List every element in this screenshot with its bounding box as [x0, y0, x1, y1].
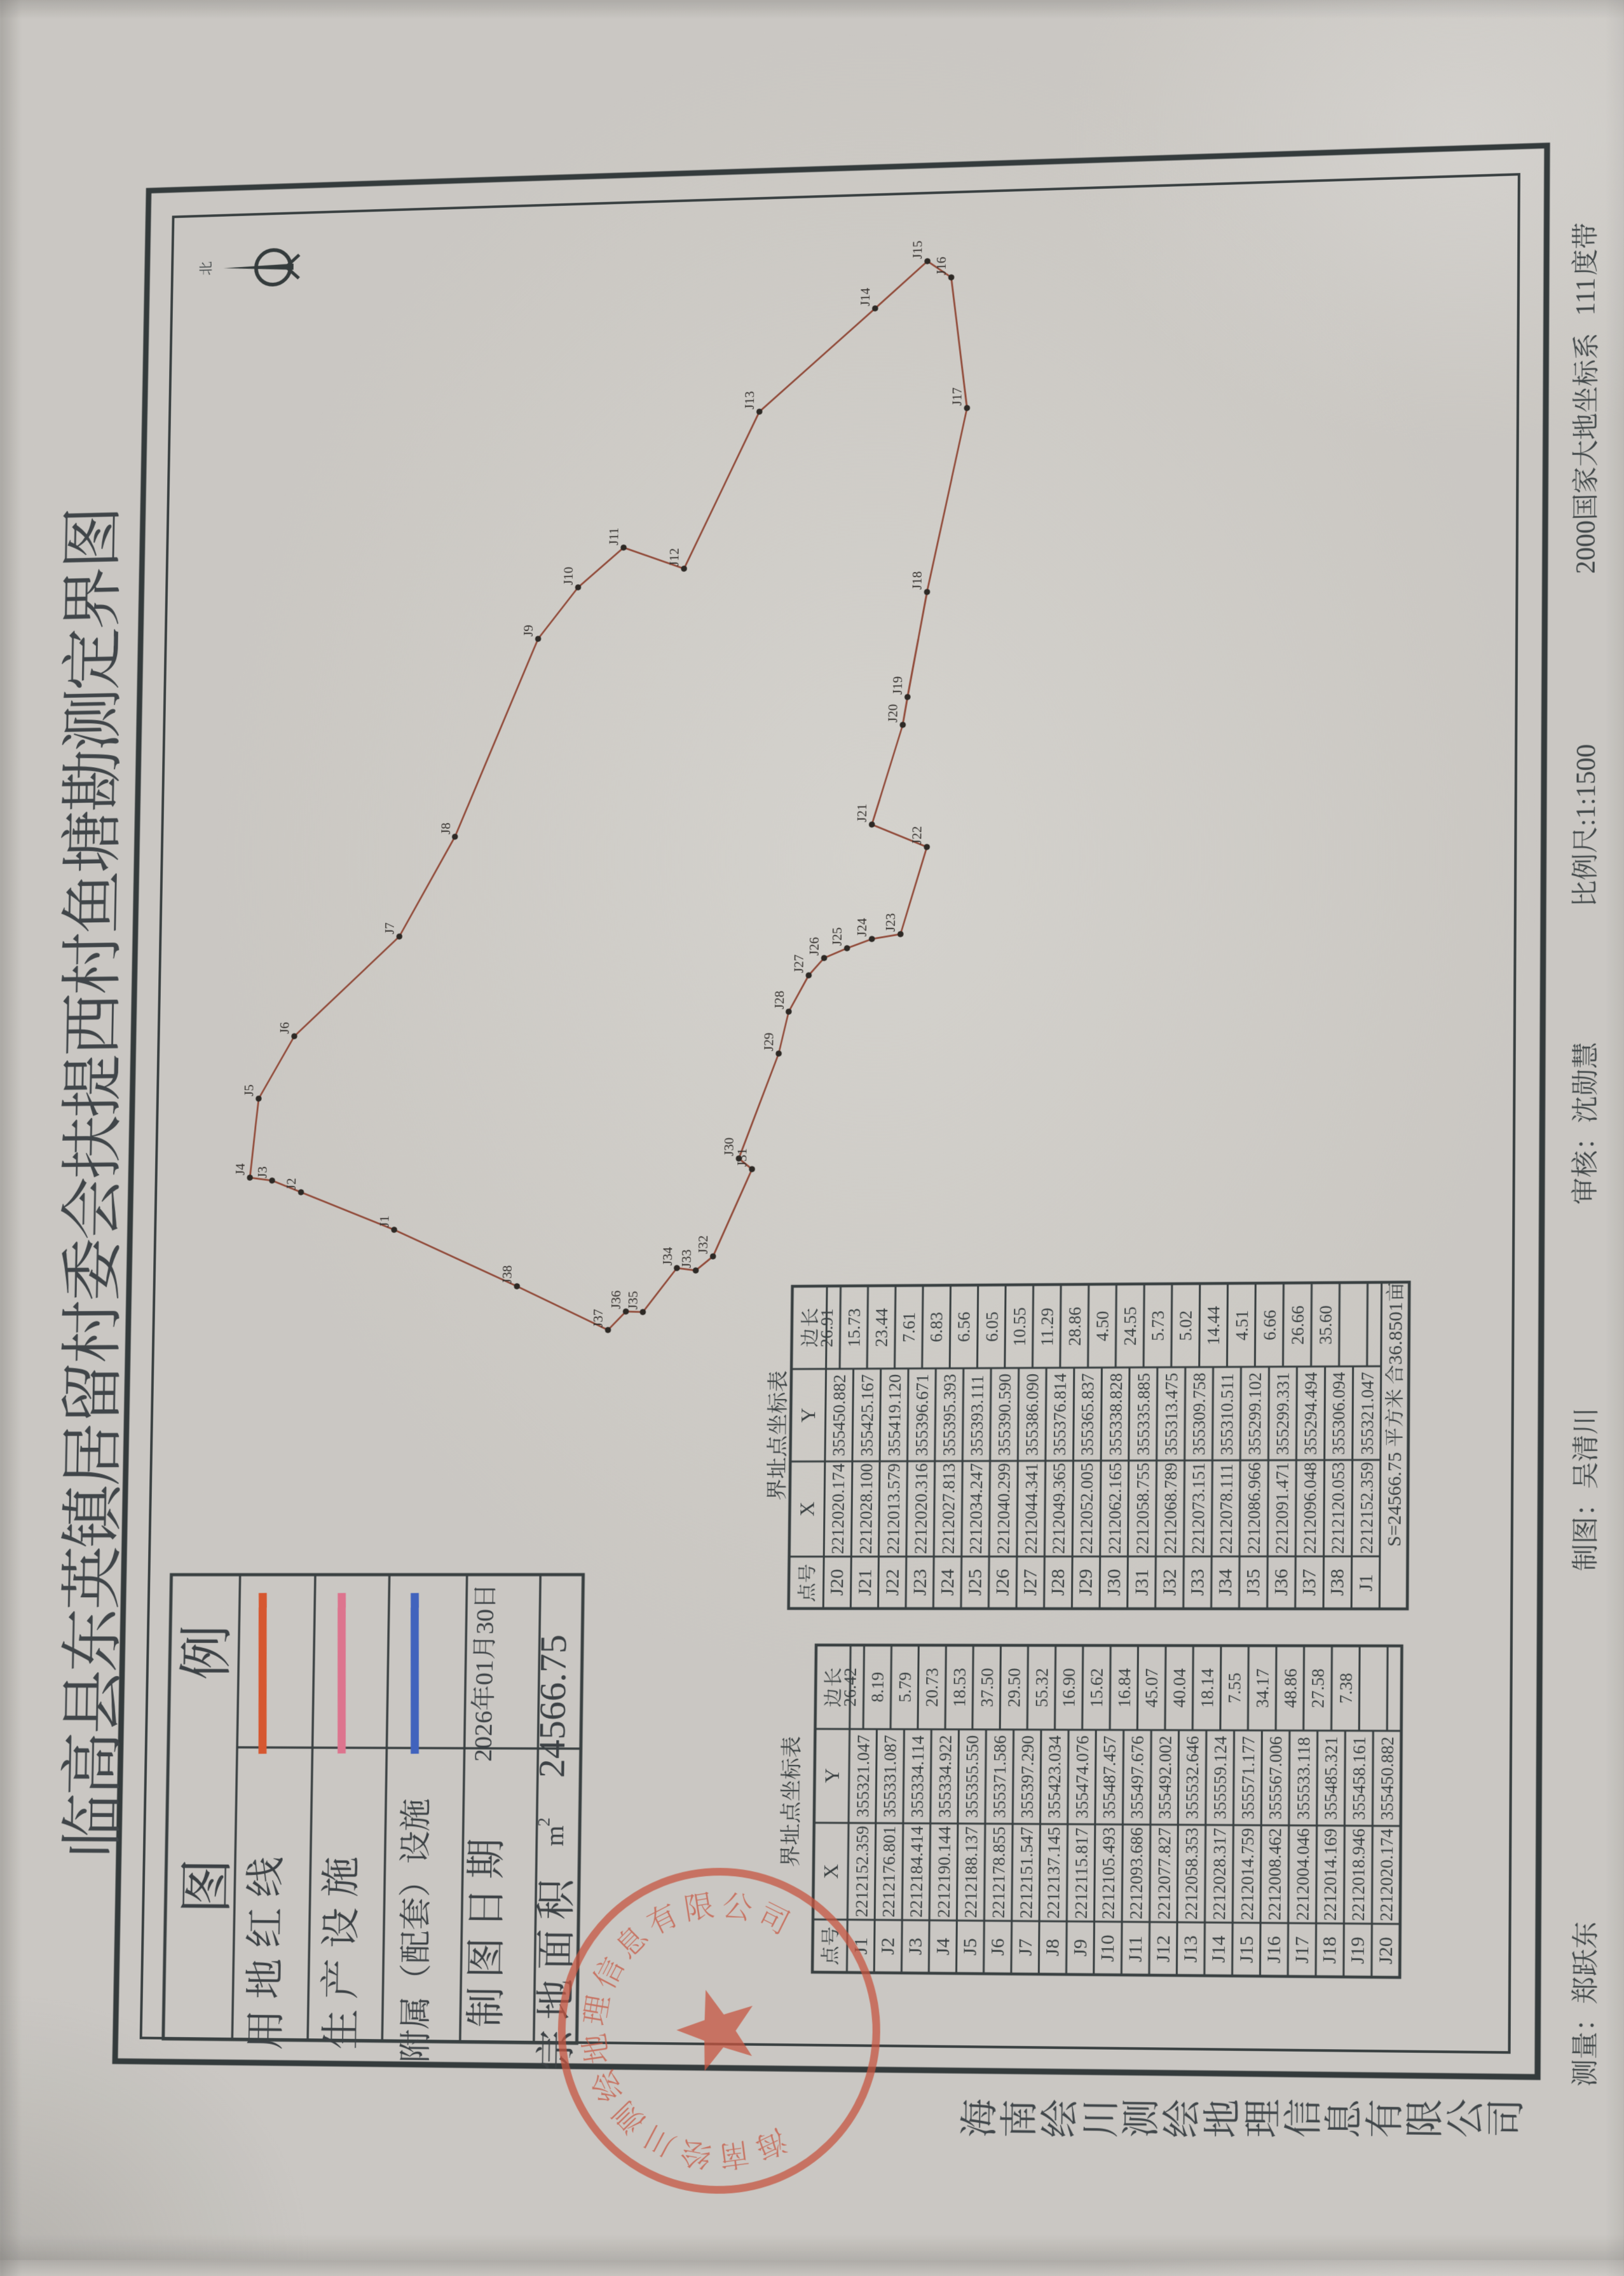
svg-text:J38: J38 [500, 1265, 515, 1284]
svg-text:J15: J15 [1236, 1936, 1258, 1963]
svg-text:355365.837: 355365.837 [1078, 1373, 1098, 1456]
svg-text:2212105.493: 2212105.493 [1099, 1827, 1119, 1919]
svg-text:J22: J22 [882, 1569, 903, 1596]
svg-text:J3: J3 [256, 1166, 270, 1178]
svg-text:4.50: 4.50 [1093, 1311, 1113, 1342]
svg-text:355450.882: 355450.882 [1377, 1736, 1397, 1820]
svg-text:355376.814: 355376.814 [1050, 1373, 1070, 1456]
svg-text:X: X [796, 1502, 819, 1516]
svg-text:16.84: 16.84 [1115, 1668, 1135, 1708]
svg-text:2212049.365: 2212049.365 [1049, 1463, 1069, 1554]
svg-text:J25: J25 [830, 927, 845, 946]
svg-text:J9: J9 [522, 625, 536, 637]
svg-text:2212091.471: 2212091.471 [1273, 1462, 1292, 1554]
svg-text:2212078.111: 2212078.111 [1217, 1464, 1236, 1554]
svg-text:355425.167: 355425.167 [857, 1374, 877, 1456]
svg-text:355306.094: 355306.094 [1329, 1372, 1349, 1455]
svg-text:J31: J31 [735, 1148, 750, 1166]
svg-text:J20: J20 [886, 704, 901, 723]
svg-text:2212152.359: 2212152.359 [852, 1826, 873, 1918]
svg-text:6.56: 6.56 [955, 1312, 974, 1342]
svg-text:2212077.827: 2212077.827 [1154, 1827, 1175, 1919]
svg-text:355321.047: 355321.047 [854, 1735, 873, 1818]
svg-text:355313.475: 355313.475 [1162, 1373, 1182, 1455]
svg-text:Y: Y [821, 1768, 843, 1783]
svg-text:2212178.855: 2212178.855 [989, 1827, 1009, 1918]
svg-text:J37: J37 [591, 1309, 606, 1328]
svg-text:355321.047: 355321.047 [1358, 1372, 1377, 1455]
svg-text:S=24566.75: S=24566.75 [1384, 1452, 1406, 1547]
svg-text:J36: J36 [610, 1290, 624, 1309]
svg-text:355331.087: 355331.087 [880, 1735, 900, 1818]
svg-text:J21: J21 [855, 803, 870, 822]
svg-text:m: m [539, 1825, 569, 1846]
svg-text:01: 01 [470, 1659, 498, 1685]
svg-text:355571.177: 355571.177 [1238, 1736, 1258, 1820]
svg-text:J11: J11 [607, 528, 622, 545]
svg-text:2212014.759: 2212014.759 [1238, 1828, 1258, 1920]
svg-text:J32: J32 [697, 1236, 711, 1254]
svg-text:J36: J36 [1271, 1569, 1292, 1596]
svg-text:27.58: 27.58 [1308, 1668, 1328, 1708]
svg-text:2212188.137: 2212188.137 [961, 1827, 981, 1918]
svg-text:355559.124: 355559.124 [1210, 1736, 1230, 1820]
svg-text:J35: J35 [1243, 1569, 1264, 1596]
svg-text:2212028.100: 2212028.100 [856, 1463, 876, 1554]
svg-text:355338.828: 355338.828 [1106, 1373, 1126, 1455]
svg-text:2212137.145: 2212137.145 [1044, 1827, 1064, 1918]
svg-text:J7: J7 [1015, 1939, 1037, 1956]
svg-text:2212008.462: 2212008.462 [1265, 1828, 1285, 1920]
svg-text:2026: 2026 [469, 1711, 498, 1762]
svg-text:J6: J6 [987, 1939, 1009, 1956]
svg-text:2212086.966: 2212086.966 [1245, 1462, 1264, 1554]
svg-text:355294.494: 355294.494 [1301, 1372, 1321, 1455]
svg-text:J29: J29 [1075, 1569, 1097, 1596]
svg-text:15.62: 15.62 [1087, 1668, 1107, 1708]
svg-text:J5: J5 [960, 1938, 981, 1955]
svg-text:J26: J26 [992, 1569, 1014, 1596]
svg-text:Y: Y [796, 1408, 819, 1422]
svg-text:5.02: 5.02 [1176, 1311, 1196, 1341]
svg-text:355299.102: 355299.102 [1245, 1372, 1265, 1455]
svg-text:J8: J8 [1042, 1939, 1064, 1956]
svg-text:355390.590: 355390.590 [995, 1373, 1014, 1455]
svg-text:355485.321: 355485.321 [1321, 1736, 1341, 1820]
svg-text:2212068.789: 2212068.789 [1161, 1462, 1180, 1554]
svg-text:J32: J32 [1159, 1569, 1181, 1596]
svg-text:18.14: 18.14 [1198, 1668, 1217, 1708]
svg-text:35.60: 35.60 [1316, 1305, 1336, 1345]
svg-text:J1: J1 [1355, 1574, 1377, 1591]
svg-text:2212093.686: 2212093.686 [1126, 1827, 1147, 1919]
svg-text:5.79: 5.79 [896, 1672, 915, 1703]
svg-text:J20: J20 [826, 1569, 847, 1596]
svg-text:2212052.005: 2212052.005 [1077, 1463, 1096, 1554]
svg-text:355532.646: 355532.646 [1182, 1736, 1202, 1819]
svg-text:2212062.165: 2212062.165 [1105, 1462, 1125, 1553]
svg-text:J22: J22 [910, 826, 925, 845]
svg-text:355458.161: 355458.161 [1349, 1736, 1369, 1820]
svg-text:J12: J12 [1153, 1935, 1175, 1963]
svg-text:55.32: 55.32 [1032, 1668, 1052, 1707]
svg-text:15.73: 15.73 [845, 1308, 864, 1347]
svg-text:111: 111 [1570, 277, 1601, 316]
svg-text:355487.457: 355487.457 [1100, 1736, 1119, 1819]
svg-text:2212013.579: 2212013.579 [884, 1463, 903, 1554]
svg-text:8.19: 8.19 [868, 1672, 887, 1703]
svg-text:J7: J7 [383, 922, 397, 934]
svg-text:J6: J6 [278, 1022, 292, 1034]
svg-text:7.38: 7.38 [1336, 1673, 1356, 1703]
svg-text:2000: 2000 [1570, 520, 1601, 575]
svg-text:2212073.151: 2212073.151 [1189, 1462, 1208, 1554]
svg-text:J23: J23 [884, 913, 898, 932]
svg-text:J2: J2 [877, 1937, 898, 1954]
svg-text:J29: J29 [762, 1033, 777, 1051]
svg-text:355335.885: 355335.885 [1134, 1373, 1154, 1455]
svg-text:48.86: 48.86 [1281, 1668, 1300, 1708]
svg-text:J30: J30 [1103, 1569, 1125, 1596]
svg-text:37.50: 37.50 [978, 1668, 997, 1707]
svg-text:J38: J38 [1327, 1569, 1348, 1595]
svg-text:355492.002: 355492.002 [1156, 1736, 1175, 1819]
svg-text:18.53: 18.53 [950, 1668, 970, 1707]
svg-text:2212034.247: 2212034.247 [966, 1463, 986, 1554]
svg-text:J10: J10 [1097, 1935, 1119, 1962]
svg-text:J11: J11 [1125, 1936, 1147, 1963]
svg-text:J16: J16 [934, 257, 949, 275]
svg-text:J27: J27 [1020, 1569, 1041, 1596]
svg-text:J16: J16 [1264, 1936, 1285, 1963]
svg-text:J24: J24 [937, 1569, 959, 1595]
svg-text:J18: J18 [910, 571, 925, 590]
svg-text:J33: J33 [1187, 1569, 1208, 1596]
svg-text:J35: J35 [626, 1291, 641, 1309]
svg-text:355397.290: 355397.290 [1018, 1735, 1037, 1818]
svg-text:7.55: 7.55 [1225, 1673, 1245, 1703]
svg-text:355497.676: 355497.676 [1128, 1736, 1147, 1819]
svg-text:J25: J25 [965, 1569, 986, 1596]
svg-text:26.42: 26.42 [840, 1668, 860, 1707]
svg-text:355419.120: 355419.120 [885, 1374, 904, 1456]
svg-text:36.8501: 36.8501 [1385, 1302, 1407, 1365]
svg-text:J28: J28 [773, 991, 788, 1009]
svg-text:J24: J24 [855, 918, 870, 936]
svg-text:J13: J13 [743, 391, 758, 409]
svg-text:2212027.813: 2212027.813 [939, 1463, 959, 1554]
svg-text:J13: J13 [1180, 1935, 1202, 1963]
svg-text:2212058.755: 2212058.755 [1133, 1462, 1152, 1554]
svg-text:16.90: 16.90 [1060, 1668, 1079, 1708]
svg-text:J10: J10 [562, 567, 577, 585]
svg-text:355423.034: 355423.034 [1045, 1736, 1065, 1818]
svg-text:J2: J2 [285, 1178, 299, 1190]
svg-text:J19: J19 [1347, 1937, 1368, 1964]
svg-text:J37: J37 [1299, 1569, 1320, 1595]
svg-text:355310.511: 355310.511 [1217, 1373, 1237, 1455]
svg-text:J19: J19 [890, 676, 905, 695]
svg-text:6.05: 6.05 [983, 1312, 1002, 1342]
svg-text:10.55: 10.55 [1010, 1307, 1030, 1346]
svg-text:J17: J17 [1292, 1936, 1313, 1963]
svg-text:355396.671: 355396.671 [912, 1374, 932, 1456]
svg-text:34.17: 34.17 [1253, 1668, 1273, 1708]
svg-text:6.83: 6.83 [927, 1312, 946, 1342]
svg-text:29.50: 29.50 [1005, 1668, 1025, 1707]
svg-text:J17: J17 [950, 387, 965, 405]
svg-text:J28: J28 [1047, 1569, 1069, 1596]
svg-text:4.51: 4.51 [1232, 1310, 1252, 1340]
svg-text:J26: J26 [807, 937, 822, 955]
svg-text:2: 2 [534, 1818, 554, 1827]
svg-text:355393.111: 355393.111 [967, 1375, 987, 1455]
svg-text:J31: J31 [1131, 1569, 1153, 1596]
svg-text:J33: J33 [679, 1250, 694, 1268]
svg-text:J9: J9 [1070, 1939, 1091, 1956]
svg-text:J1: J1 [378, 1215, 392, 1227]
svg-text:24566.75: 24566.75 [531, 1635, 575, 1778]
svg-text:J21: J21 [854, 1569, 875, 1596]
svg-text:28.86: 28.86 [1065, 1307, 1085, 1346]
svg-text:355371.586: 355371.586 [990, 1735, 1010, 1818]
svg-text:J30: J30 [722, 1138, 737, 1156]
svg-text:40.04: 40.04 [1170, 1668, 1189, 1708]
svg-text:J34: J34 [1215, 1569, 1236, 1596]
svg-text:5.73: 5.73 [1149, 1311, 1168, 1341]
svg-text:20.73: 20.73 [922, 1668, 942, 1707]
svg-text:J20: J20 [1375, 1937, 1397, 1965]
svg-text:24.55: 24.55 [1121, 1307, 1140, 1346]
svg-text:J3: J3 [905, 1938, 926, 1955]
svg-text:2212152.359: 2212152.359 [1357, 1462, 1377, 1553]
svg-text:2212040.299: 2212040.299 [994, 1463, 1014, 1554]
svg-text:355334.922: 355334.922 [936, 1735, 955, 1818]
svg-text:J14: J14 [1208, 1935, 1229, 1963]
svg-text:355474.076: 355474.076 [1072, 1736, 1092, 1818]
svg-text:2212115.817: 2212115.817 [1072, 1828, 1092, 1919]
svg-text:6.66: 6.66 [1260, 1310, 1280, 1340]
svg-text:30: 30 [471, 1609, 499, 1634]
svg-text:2212020.174: 2212020.174 [828, 1464, 848, 1555]
svg-text:2212004.046: 2212004.046 [1293, 1829, 1313, 1921]
svg-text:J12: J12 [667, 548, 682, 566]
svg-text:J4: J4 [932, 1938, 953, 1956]
svg-text:2212120.053: 2212120.053 [1328, 1462, 1348, 1554]
svg-text:355386.090: 355386.090 [1023, 1373, 1042, 1455]
svg-text:355533.118: 355533.118 [1294, 1737, 1314, 1820]
svg-text:J14: J14 [859, 288, 873, 306]
svg-text:355334.114: 355334.114 [908, 1736, 927, 1818]
svg-text:2212020.174: 2212020.174 [1377, 1829, 1397, 1921]
svg-text:2212018.946: 2212018.946 [1349, 1829, 1369, 1921]
svg-text:355355.550: 355355.550 [962, 1735, 982, 1818]
svg-text:355395.393: 355395.393 [940, 1374, 960, 1456]
svg-text:2212028.317: 2212028.317 [1210, 1828, 1230, 1920]
svg-text:J23: J23 [910, 1569, 931, 1596]
svg-text:355567.006: 355567.006 [1266, 1736, 1285, 1820]
svg-text:2212184.414: 2212184.414 [907, 1826, 927, 1918]
svg-text:J15: J15 [911, 240, 925, 259]
svg-text:J8: J8 [439, 822, 453, 835]
svg-text:2212058.353: 2212058.353 [1182, 1828, 1202, 1920]
svg-text:X: X [819, 1864, 842, 1879]
svg-text:2212190.144: 2212190.144 [934, 1826, 955, 1918]
svg-text:7.61: 7.61 [899, 1312, 918, 1342]
svg-text:11.29: 11.29 [1038, 1308, 1058, 1346]
svg-text:14.44: 14.44 [1204, 1306, 1224, 1346]
svg-text:26.91: 26.91 [817, 1309, 836, 1347]
svg-text:2212176.801: 2212176.801 [879, 1826, 899, 1918]
svg-text:45.07: 45.07 [1142, 1668, 1162, 1708]
svg-text:355299.331: 355299.331 [1273, 1372, 1293, 1455]
svg-text:J4: J4 [234, 1164, 248, 1176]
svg-text:2212151.547: 2212151.547 [1017, 1827, 1037, 1918]
svg-text:2212020.316: 2212020.316 [911, 1463, 931, 1554]
svg-text:J18: J18 [1319, 1937, 1341, 1964]
svg-text:J34: J34 [661, 1247, 676, 1265]
svg-text::1:1500: :1:1500 [1570, 744, 1601, 826]
svg-text:2212014.169: 2212014.169 [1321, 1829, 1341, 1921]
svg-text:355450.882: 355450.882 [829, 1374, 849, 1456]
svg-text:2212044.341: 2212044.341 [1021, 1463, 1041, 1554]
svg-text:2212096.048: 2212096.048 [1300, 1462, 1320, 1554]
svg-text:J5: J5 [242, 1084, 256, 1096]
svg-text:J27: J27 [792, 955, 807, 973]
svg-text:355309.758: 355309.758 [1189, 1373, 1209, 1455]
svg-text:23.44: 23.44 [872, 1308, 891, 1347]
svg-text:26.66: 26.66 [1288, 1305, 1308, 1345]
